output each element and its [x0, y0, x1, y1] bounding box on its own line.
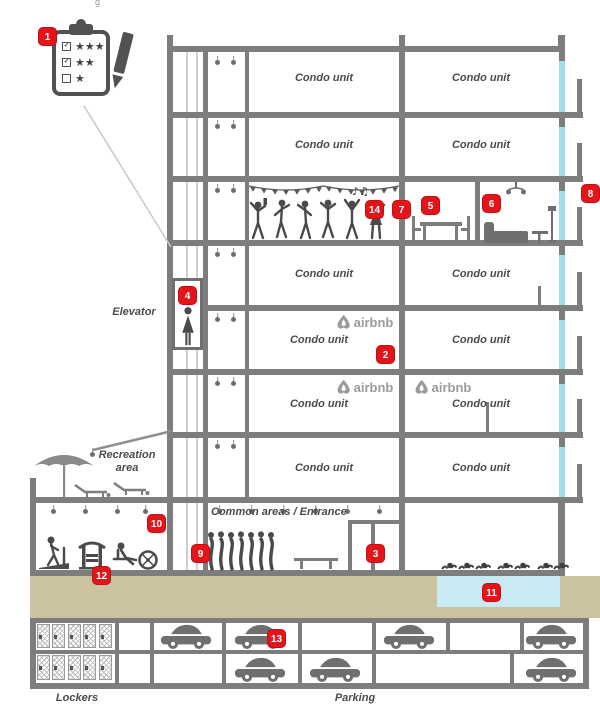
ceiling-lamp-icon	[83, 505, 88, 514]
swimmer-icon	[497, 560, 513, 572]
ceiling-lamp-icon	[51, 505, 56, 514]
parking-divider	[298, 623, 302, 650]
balcony-rail	[577, 79, 582, 117]
marker-8: 8	[581, 184, 600, 203]
locker-icon	[52, 655, 65, 680]
parking-divider	[222, 654, 226, 683]
marker-5: 5	[421, 196, 440, 215]
condo-unit-label: Condo unit	[290, 398, 348, 410]
lockers-label: Lockers	[56, 692, 98, 704]
locker-icon	[83, 655, 96, 680]
ceiling-lamp-icon	[215, 56, 220, 65]
marker-4: 4	[178, 286, 197, 305]
airbnb-belo-icon	[337, 379, 351, 395]
parked-car-icon	[523, 623, 579, 649]
floor-slab	[167, 432, 565, 438]
swimmer-icon	[458, 560, 474, 572]
marker-7: 7	[392, 200, 411, 219]
parking-divider	[115, 623, 119, 650]
locker-icon	[83, 624, 96, 648]
marker-6: 6	[482, 194, 501, 213]
airbnb-wordmark: airbnb	[432, 380, 472, 395]
balcony-rail	[577, 207, 582, 245]
window-mullion	[559, 311, 565, 320]
balcony-rail	[577, 336, 582, 374]
condo-unit-label: Condo unit	[452, 398, 510, 410]
condo-unit-label: Condo unit	[295, 268, 353, 280]
condo-unit-label: Condo unit	[290, 334, 348, 346]
window-mullion	[559, 118, 565, 127]
ceiling-lamp-icon	[215, 440, 220, 449]
ceiling-lamp-icon	[231, 56, 236, 65]
locker-icon	[68, 655, 81, 680]
balcony-rail	[577, 399, 582, 437]
parked-car-icon	[381, 623, 437, 649]
locker-icon	[52, 624, 65, 648]
swimmer-icon	[553, 560, 569, 572]
locker-icon	[99, 624, 112, 648]
ceiling-lamp-icon	[143, 505, 148, 514]
balcony-rail	[577, 464, 582, 502]
condo-unit-label: Condo unit	[295, 139, 353, 151]
parking-divider	[150, 623, 154, 650]
floor-slab	[167, 112, 565, 118]
parking-divider	[222, 623, 226, 650]
parking-divider	[372, 654, 376, 683]
two-star-rating: ★★	[75, 56, 95, 69]
checkbox-empty-icon	[62, 74, 71, 83]
checkbox-checked-icon: ✓	[62, 42, 71, 51]
treadmill-icon	[37, 534, 71, 570]
marker-1: 1	[38, 27, 57, 46]
lounger-icon	[112, 481, 152, 496]
parked-car-icon	[523, 656, 579, 682]
three-star-rating: ★★★	[75, 40, 105, 53]
airbnb-wordmark: airbnb	[354, 315, 394, 330]
ceiling-lamp-icon	[215, 377, 220, 386]
ceiling-lamp-icon	[215, 313, 220, 322]
bench-icon	[293, 557, 339, 570]
swimmer-icon	[514, 560, 530, 572]
window-mullion	[559, 52, 565, 61]
airbnb-logo: airbnb	[337, 379, 394, 395]
elevator-passenger-icon	[179, 306, 197, 348]
queue-people-icon	[206, 531, 280, 571]
marker-9: 9	[191, 544, 210, 563]
condo-unit-label: Condo unit	[452, 139, 510, 151]
ceiling-lamp-icon	[231, 248, 236, 257]
airbnb-wordmark: airbnb	[354, 380, 394, 395]
ceiling-lamp-icon	[231, 377, 236, 386]
rating-row: ★	[62, 71, 105, 86]
parked-car-icon	[307, 656, 363, 682]
marker-11: 11	[482, 583, 501, 602]
roof-slab	[167, 46, 565, 52]
airbnb-belo-icon	[337, 314, 351, 330]
condo-unit-label: Condo unit	[452, 268, 510, 280]
locker-icon	[68, 624, 81, 648]
window-mullion	[559, 375, 565, 384]
checkbox-checked-icon: ✓	[62, 58, 71, 67]
ceiling-lamp-icon	[231, 120, 236, 129]
locker-icon	[37, 624, 50, 648]
basement-right-wall	[583, 618, 589, 689]
parking-label: Parking	[335, 692, 375, 704]
ceiling-lamp-icon	[215, 184, 220, 193]
exercise-bike-icon	[112, 540, 160, 570]
pencil-icon	[107, 28, 135, 94]
pointer-line	[84, 106, 171, 247]
ratings-clipboard-icon: ✓ ★★★ ✓ ★★ ★	[52, 30, 110, 96]
marker-14: 14	[365, 200, 384, 219]
one-star-rating: ★	[75, 72, 85, 85]
rating-row: ✓ ★★★	[62, 39, 105, 54]
entrance-door-jamb	[348, 524, 352, 570]
floor-slab	[167, 369, 565, 375]
interior-wall	[538, 286, 541, 305]
recreation-label-line2: area	[99, 462, 156, 475]
ceiling-lamp-icon	[115, 505, 120, 514]
clipboard-clip-knob	[76, 19, 86, 27]
marker-3: 3	[366, 544, 385, 563]
locker-icon	[37, 655, 50, 680]
balcony-rail	[577, 272, 582, 310]
marker-12: 12	[92, 566, 111, 585]
ceiling-lamp-icon	[215, 248, 220, 257]
basement-bottom-slab	[30, 683, 589, 689]
condo-unit-label: Condo unit	[452, 72, 510, 84]
lounger-icon	[73, 483, 113, 498]
floor-lamp-icon	[546, 206, 558, 244]
basement-top-slab	[30, 618, 589, 623]
condo-unit-label: Condo unit	[452, 462, 510, 474]
swimmer-icon	[537, 560, 553, 572]
entrance-door-lintel	[348, 520, 405, 524]
ceiling-lamp-icon	[231, 440, 236, 449]
clipboard-rows: ✓ ★★★ ✓ ★★ ★	[62, 39, 105, 86]
parked-car-icon	[232, 656, 288, 682]
rating-row: ✓ ★★	[62, 55, 105, 70]
window-mullion	[559, 182, 565, 191]
marker-10: 10	[147, 514, 166, 533]
window-mullion	[559, 246, 565, 255]
party-floor-room-divider	[475, 182, 480, 240]
recreation-roof-line	[93, 431, 172, 450]
parking-divider	[150, 654, 154, 683]
common-areas-label: Common areas / Entrance	[211, 506, 347, 518]
ceiling-lamp-icon	[215, 120, 220, 129]
sofa-icon	[484, 220, 548, 243]
airbnb-logo: airbnb	[415, 379, 472, 395]
pendant-lamp-icon	[504, 182, 528, 198]
recreation-area-label: Recreation area	[99, 449, 156, 475]
swimmer-icon	[475, 560, 491, 572]
ceiling-lamp-icon	[231, 184, 236, 193]
parking-divider	[372, 623, 376, 650]
swimmer-icon	[441, 560, 457, 572]
elevator-label: Elevator	[112, 306, 155, 318]
condo-unit-label: Condo unit	[452, 334, 510, 346]
floor-slab	[167, 305, 565, 311]
marker-13: 13	[267, 629, 286, 648]
ceiling-lamp-icon	[231, 313, 236, 322]
parking-divider	[115, 654, 119, 683]
window-mullion	[559, 438, 565, 447]
marker-2: 2	[376, 345, 395, 364]
condo-unit-label: Condo unit	[295, 462, 353, 474]
parking-divider	[298, 654, 302, 683]
recreation-label-line1: Recreation	[99, 449, 156, 462]
music-notes-icon: ♪♫	[352, 185, 369, 198]
locker-icon	[99, 655, 112, 680]
ceiling-lamp-icon	[377, 505, 382, 514]
building-cross-section-diagram: g	[0, 0, 600, 708]
balcony-rail	[577, 143, 582, 181]
dining-table-icon	[408, 214, 474, 242]
cropped-text-artifact: g	[95, 0, 100, 7]
condo-unit-label: Condo unit	[295, 72, 353, 84]
parking-divider	[510, 654, 514, 683]
parked-car-icon	[158, 623, 214, 649]
airbnb-logo: airbnb	[337, 314, 394, 330]
parking-divider	[446, 623, 450, 650]
airbnb-belo-icon	[415, 379, 429, 395]
